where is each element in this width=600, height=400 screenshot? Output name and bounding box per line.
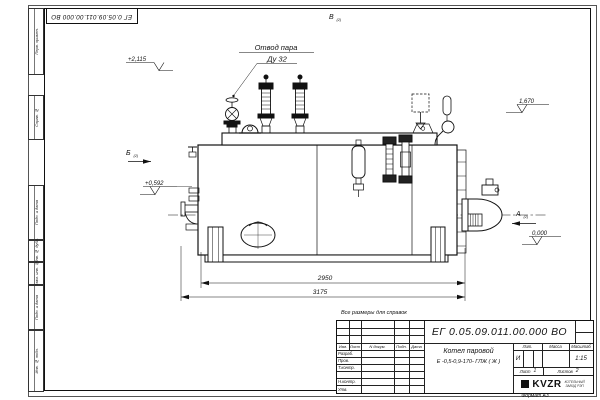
elevation-mark-left-mid: +0,592 <box>140 181 192 195</box>
elevation-mark-top: +2,115 <box>126 57 173 71</box>
lit-label: Лит. <box>513 343 542 350</box>
callout-steam-outlet-text: Отвод пара <box>255 43 298 52</box>
svg-text:1,670: 1,670 <box>519 99 535 105</box>
safety-valve-2 <box>292 75 308 133</box>
gauge-body <box>443 96 451 115</box>
scale-value: 1:15 <box>569 350 593 367</box>
front-flange <box>181 202 185 216</box>
view-a-arrow <box>512 221 520 225</box>
support-leg-front <box>208 227 223 262</box>
product-model: Е -0,5-0,9-170- ГЛЖ ( Ж ) <box>424 357 513 366</box>
elevation-mark-right-upper: 1,670 <box>506 99 549 113</box>
callout-dn-text: Ду 32 <box>266 55 287 64</box>
company-logo-icon <box>521 380 529 388</box>
svg-text:(2): (2) <box>524 215 529 219</box>
elevation-mark-zero: 0,000 <box>522 231 561 245</box>
row-ncontrol: Н.контр. <box>338 378 361 385</box>
steam-outlet-valve <box>224 98 240 133</box>
safety-valve-1 <box>258 75 274 133</box>
svg-text:3175: 3175 <box>313 289 328 296</box>
row-approved: Утв. <box>338 385 361 393</box>
sheets-cell: Листов 2 <box>543 367 593 375</box>
drain-elbow <box>185 212 197 224</box>
top-dome <box>239 125 261 133</box>
format-label: Формат А3 <box>500 393 570 399</box>
support-leg-rear <box>431 227 445 262</box>
burner-motor <box>482 185 498 195</box>
view-b-arrow <box>143 159 151 163</box>
leader-line <box>234 64 257 96</box>
burner-fin-block <box>468 214 482 226</box>
title-block-doc-number: ЕГ 0.05.09.011.00.000 ВО <box>424 321 575 343</box>
view-label-a: А (2) <box>512 211 536 226</box>
scale-label: Масштаб <box>569 343 593 350</box>
row-developed: Разраб. <box>338 350 361 357</box>
company-name: КОТЕЛЬНЫЙ ЗАВОД РЭП <box>565 380 585 388</box>
boiler-body <box>198 133 466 255</box>
svg-text:В: В <box>329 14 334 21</box>
lit-value: И <box>513 350 523 367</box>
gauge-dashed-outline <box>412 94 429 112</box>
svg-text:(2): (2) <box>134 154 139 158</box>
company-cell: KVZR КОТЕЛЬНЫЙ ЗАВОД РЭП <box>513 375 593 393</box>
title-block: ЕГ 0.05.09.011.00.000 ВО Изм. Лист N док… <box>336 320 594 394</box>
svg-text:А: А <box>515 211 521 218</box>
row-checked: Пров. <box>338 357 361 364</box>
svg-text:+2,115: +2,115 <box>128 57 147 63</box>
row-tcontrol: Т.контр. <box>338 364 361 371</box>
svg-text:2950: 2950 <box>317 275 333 282</box>
handwheel <box>226 98 238 102</box>
sheet-cell: Лист 1 <box>513 367 543 375</box>
drawing-sheet: ЕГ 0.05.09.011.00.000 ВО Перв. примен. С… <box>0 0 600 400</box>
col-izm: Изм. <box>337 343 349 350</box>
svg-text:0,000: 0,000 <box>532 231 548 237</box>
col-date: Дата <box>409 343 424 350</box>
siphon-loop <box>442 121 454 133</box>
company-logo-text: KVZR <box>532 379 561 390</box>
view-label-v: В (2) <box>329 14 342 22</box>
front-fittings <box>181 147 199 230</box>
burner <box>462 179 502 231</box>
view-label-b: Б (2) <box>126 150 151 164</box>
col-doc: N докум. <box>361 343 394 350</box>
col-list: Лист <box>349 343 361 350</box>
svg-text:(2): (2) <box>337 18 342 22</box>
dimension-overall-length: 3175 <box>181 289 465 299</box>
col-sign: Подп. <box>394 343 409 350</box>
svg-text:+0,592: +0,592 <box>145 181 164 187</box>
mass-label: Масса <box>542 343 569 350</box>
reference-note: Все размеры для справок <box>341 310 461 316</box>
svg-text:Б: Б <box>126 150 131 157</box>
